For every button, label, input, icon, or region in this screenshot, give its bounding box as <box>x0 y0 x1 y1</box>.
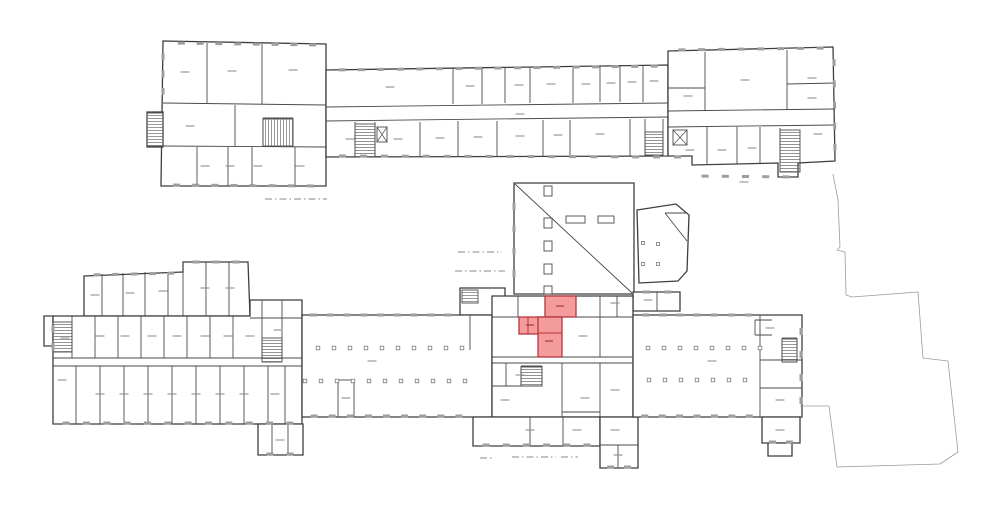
column-marker <box>444 346 448 350</box>
central-south-stub <box>600 417 638 468</box>
elevator-symbol <box>377 127 387 142</box>
column-marker <box>303 379 307 383</box>
column-marker <box>351 379 355 383</box>
upper-right-block <box>668 47 835 177</box>
opening-symbol <box>566 216 585 223</box>
east-south-small <box>768 443 792 456</box>
column-marker <box>678 346 682 350</box>
column-marker <box>399 379 403 383</box>
column-marker <box>726 346 730 350</box>
site-boundary-line <box>800 174 958 467</box>
column-marker <box>662 346 666 350</box>
annex-connector-rooms <box>633 292 680 311</box>
opening-symbol <box>544 286 552 294</box>
column-marker <box>758 346 762 350</box>
column-marker <box>710 346 714 350</box>
building-outlines <box>44 41 835 468</box>
floor-plan-page <box>0 0 1000 511</box>
column-marker <box>646 346 650 350</box>
column-marker <box>711 378 715 382</box>
column-marker <box>380 346 384 350</box>
column-marker <box>727 378 731 382</box>
upper-left-block <box>161 41 326 186</box>
column-marker <box>316 346 320 350</box>
central-tower-south <box>473 417 600 446</box>
column-marker <box>332 346 336 350</box>
column-marker <box>431 379 435 383</box>
column-marker <box>647 378 651 382</box>
column-marker <box>742 346 746 350</box>
upper-left-stair-annex <box>147 112 163 147</box>
column-marker <box>679 378 683 382</box>
column-marker <box>364 346 368 350</box>
west-hall <box>302 315 492 417</box>
column-marker <box>694 346 698 350</box>
column-marker <box>319 379 323 383</box>
opening-symbol <box>544 218 552 228</box>
column-marker <box>415 379 419 383</box>
highlighted-room[interactable] <box>538 317 562 357</box>
column-marker <box>460 346 464 350</box>
column-marker <box>412 346 416 350</box>
column-marker <box>663 378 667 382</box>
column-marker <box>348 346 352 350</box>
opening-symbol <box>544 186 552 196</box>
column-marker <box>383 379 387 383</box>
opening-symbol <box>598 216 614 223</box>
column-marker <box>695 378 699 382</box>
lower-left-upper-rooms <box>84 262 250 316</box>
elevator-symbol <box>673 130 687 145</box>
floor-plan-canvas <box>0 0 1000 511</box>
column-marker <box>335 379 339 383</box>
opening-symbol <box>544 264 552 274</box>
column-marker <box>428 346 432 350</box>
column-marker <box>447 379 451 383</box>
column-marker <box>743 378 747 382</box>
east-hall <box>633 315 802 417</box>
column-marker <box>463 379 467 383</box>
column-marker <box>367 379 371 383</box>
column-marker <box>396 346 400 350</box>
opening-symbol <box>544 241 552 251</box>
